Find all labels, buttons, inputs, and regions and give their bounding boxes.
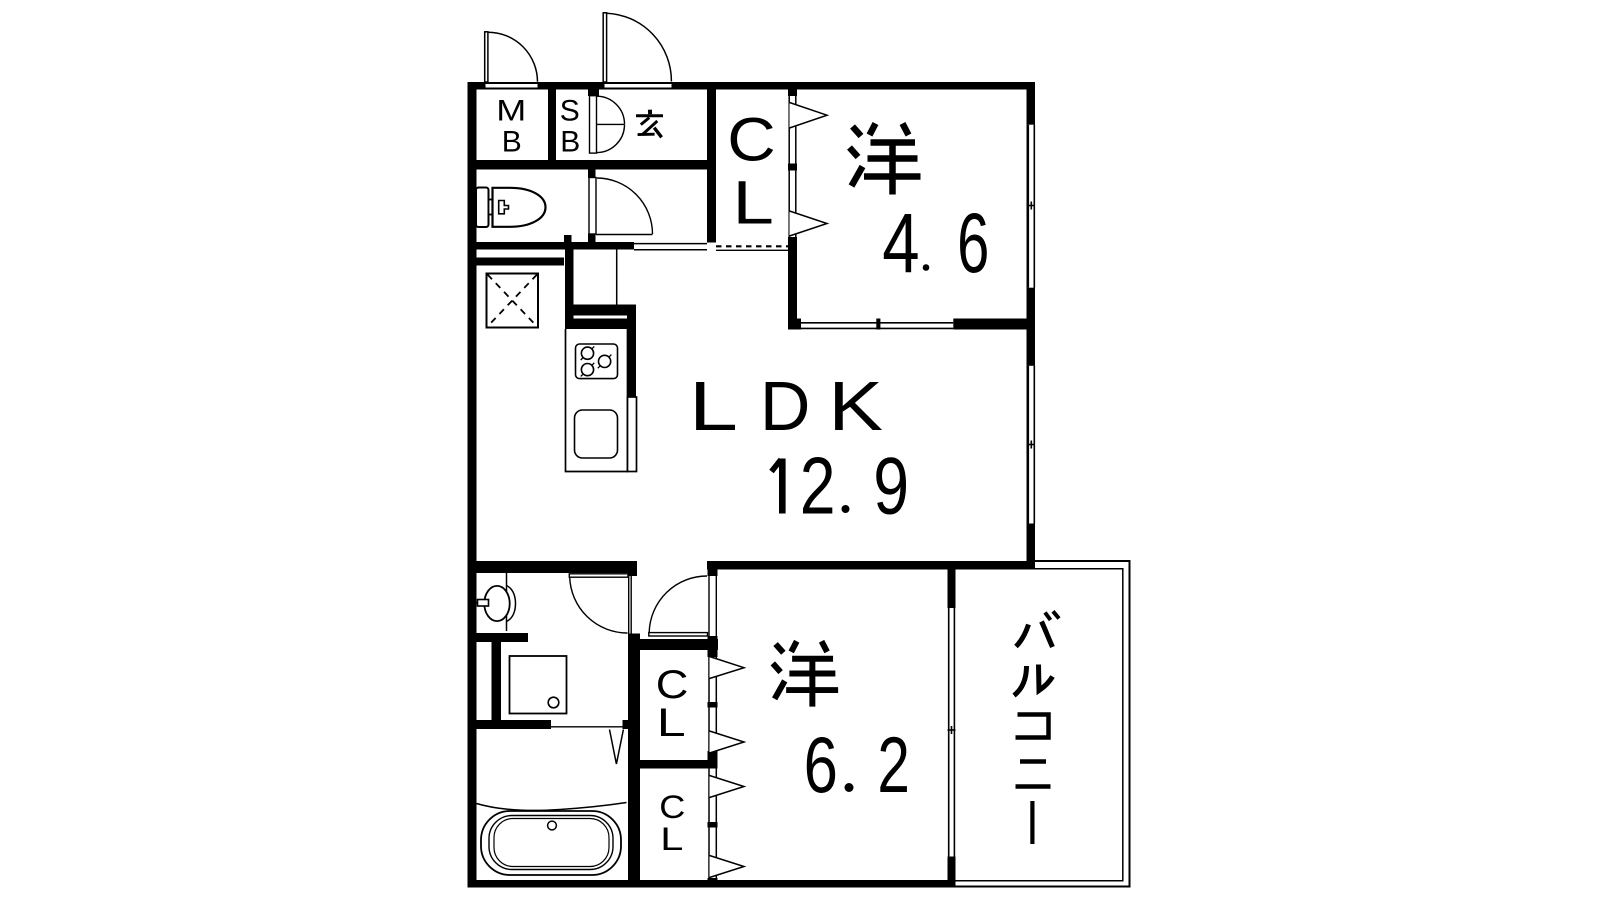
svg-text:B: B — [560, 125, 580, 158]
svg-text:L: L — [657, 700, 686, 745]
svg-text:4: 4 — [882, 197, 919, 291]
svg-text:M: M — [496, 94, 526, 127]
svg-text:B: B — [502, 125, 522, 158]
svg-text:9: 9 — [873, 440, 909, 531]
svg-text:D: D — [760, 367, 811, 445]
svg-text:2: 2 — [800, 440, 836, 531]
svg-text:L: L — [660, 821, 683, 857]
svg-text:K: K — [828, 368, 883, 446]
svg-text:L: L — [689, 367, 738, 445]
svg-text:6: 6 — [804, 722, 838, 810]
svg-text:C: C — [727, 105, 775, 173]
svg-text:L: L — [733, 169, 774, 237]
svg-text:6: 6 — [957, 198, 989, 291]
svg-text:S: S — [560, 95, 580, 128]
svg-text:2: 2 — [877, 720, 910, 809]
